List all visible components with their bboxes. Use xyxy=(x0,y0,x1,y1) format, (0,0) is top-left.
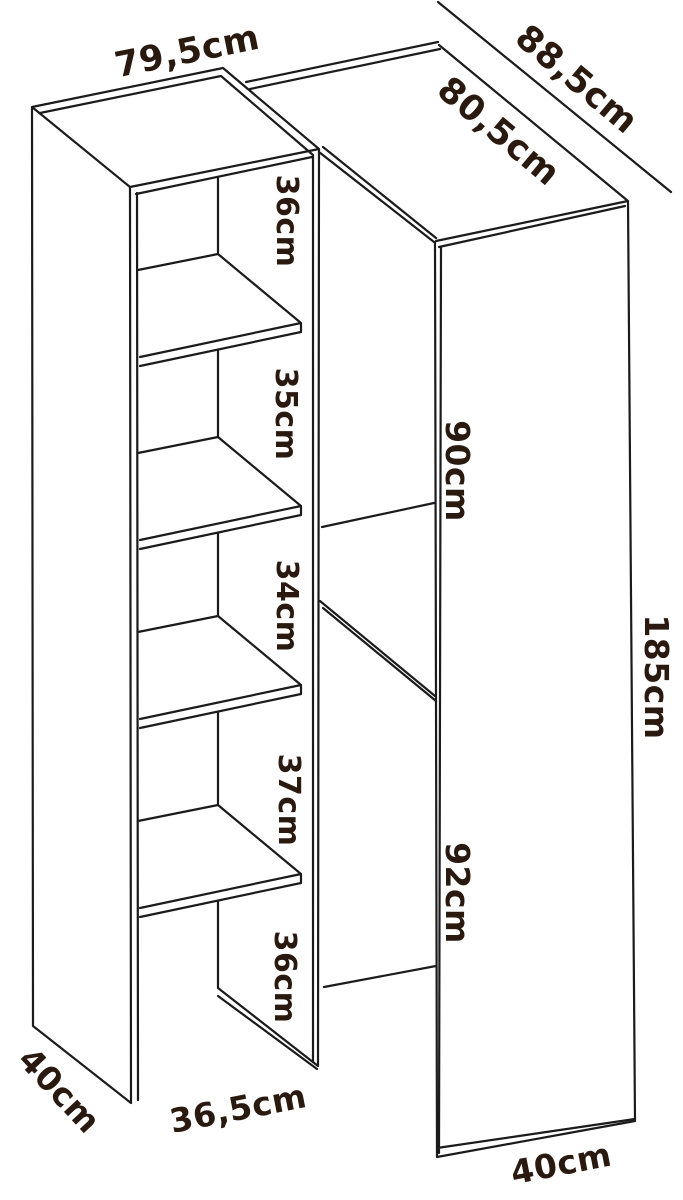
dim-label-side-depth: 40cm xyxy=(11,1040,109,1141)
compartment-label-5: 36cm xyxy=(267,931,302,1024)
cabinet-divider-lines xyxy=(320,503,436,987)
compartment-label-3: 34cm xyxy=(269,560,304,653)
dim-label-bottom-depth: 40cm xyxy=(507,1135,614,1193)
wardrobe-dimension-diagram: 79,5cm 88,5cm 80,5cm 36cm 35cm 34cm 37cm… xyxy=(0,0,683,1200)
dim-label-diagonal-width: 88,5cm xyxy=(507,17,645,142)
cabinet-panel-thickness-lines xyxy=(250,49,635,1153)
dim-label-lower-height: 92cm xyxy=(438,842,477,944)
compartment-label-2: 35cm xyxy=(268,368,303,461)
dim-label-total-height: 185cm xyxy=(637,614,676,739)
dim-label-top-depth: 80,5cm xyxy=(429,69,567,194)
dimension-labels: 79,5cm 88,5cm 80,5cm 36cm 35cm 34cm 37cm… xyxy=(11,17,676,1192)
compartment-label-1: 36cm xyxy=(269,175,304,268)
dim-label-front-width: 36,5cm xyxy=(166,1076,309,1141)
corner-cabinet xyxy=(246,2,671,1157)
dim-label-upper-height: 90cm xyxy=(438,420,477,522)
diagram-canvas: 79,5cm 88,5cm 80,5cm 36cm 35cm 34cm 37cm… xyxy=(0,0,683,1200)
compartment-label-4: 37cm xyxy=(271,754,306,847)
